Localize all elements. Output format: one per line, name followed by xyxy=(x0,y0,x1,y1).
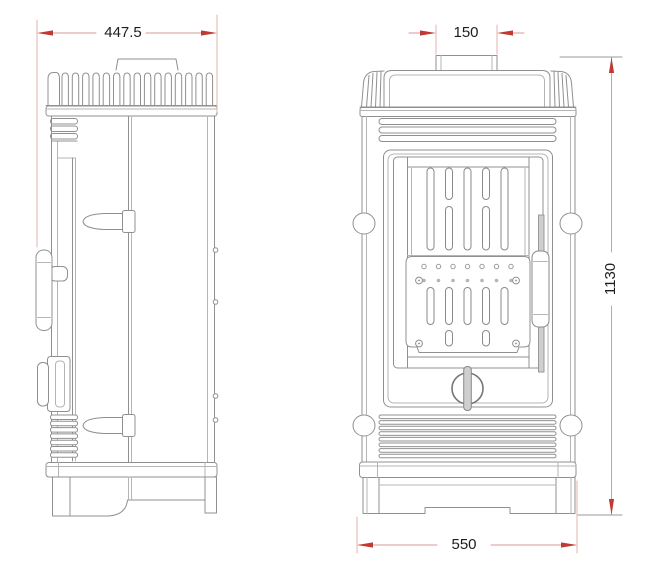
front-air-control-knob xyxy=(452,367,483,411)
side-view xyxy=(36,59,218,516)
side-body-outline xyxy=(52,116,215,462)
front-flue-collar xyxy=(436,56,497,71)
side-base xyxy=(53,477,217,516)
front-base xyxy=(363,478,575,514)
front-upper-vent-slots xyxy=(427,168,508,250)
dimension-base-width-label: 550 xyxy=(449,537,478,554)
side-upper-hinge xyxy=(83,211,135,233)
side-flue-collar xyxy=(116,59,178,70)
drawing-linework xyxy=(0,0,647,569)
side-top-plate xyxy=(46,106,217,116)
front-top-dome xyxy=(360,71,576,108)
side-door-handle xyxy=(36,250,68,331)
front-top-plate xyxy=(360,108,576,117)
front-view xyxy=(353,56,582,514)
front-door-handle xyxy=(532,215,549,372)
side-rear-screws xyxy=(213,248,218,423)
front-lower-ribs xyxy=(379,415,556,458)
side-upper-ribs xyxy=(51,119,78,140)
dimension-depth-label: 447.5 xyxy=(102,25,144,42)
side-ash-latch xyxy=(38,357,71,412)
stove-technical-drawing: 447.5 150 1130 550 xyxy=(0,0,647,569)
front-upper-ribs xyxy=(379,119,556,142)
front-riddling-plate xyxy=(406,257,530,353)
front-plinth xyxy=(360,462,577,478)
dimension-height-label: 1130 xyxy=(603,261,620,297)
side-top-fins xyxy=(46,73,217,106)
side-lower-hinge xyxy=(83,415,135,437)
side-lower-ribs xyxy=(51,415,78,457)
dimension-flue-width-label: 150 xyxy=(451,25,480,42)
side-plinth xyxy=(46,463,217,478)
